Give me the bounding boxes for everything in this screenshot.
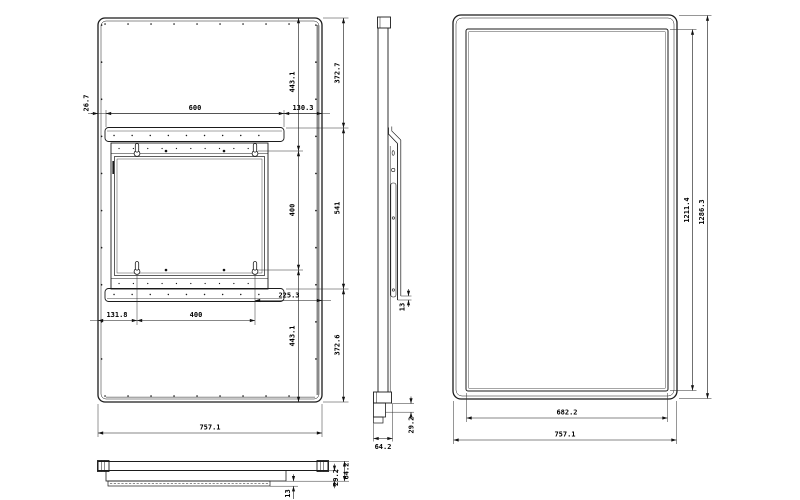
dim-top-overall-depth: 64.2 [343,463,351,480]
dim-back-overall-width: 757.1 [199,424,220,432]
front-view: 1211.4 1286.3 682.2 757.1 [453,15,712,444]
dim-side-bracket-offset: 13 [399,303,407,311]
mount-top-bar [105,128,284,142]
front-view-outline [453,15,677,399]
dim-back-hole-to-edge: 225.3 [278,292,299,300]
dim-back-mid-section: 541 [334,202,342,215]
dim-top-glass-thickness: 13 [284,489,292,497]
dim-vesa-top: 443.1 [289,71,297,92]
dim-front-display-width: 682.2 [556,409,577,417]
dim-vesa-vertical: 400 [289,204,297,217]
front-view-dimensions: 1211.4 1286.3 682.2 757.1 [454,16,712,445]
mount-bottom-bar [105,289,284,302]
top-edge-outline [98,461,329,487]
dim-vesa-bottom: 443.1 [289,325,297,346]
vesa-plate [111,143,268,289]
dim-front-overall-width: 757.1 [554,431,575,439]
side-view-dimensions: 13 29.2 64.2 [374,289,416,451]
dim-top-step-depth: 29.2 [332,469,340,486]
dim-front-display-height: 1211.4 [683,197,691,222]
dim-side-overall-depth: 64.2 [375,443,392,451]
dim-back-edge-to-hole: 131.8 [106,311,127,319]
plate-screw [223,150,226,153]
back-view: 26.7 600 130.3 443.1 400 443.1 372.7 541… [83,18,349,437]
plate-screw [165,150,168,153]
top-edge-dimensions: 64.2 29.2 13 [270,461,351,499]
dim-back-bottom-section: 372.6 [334,334,342,355]
side-profile [374,17,392,423]
top-edge-view: 64.2 29.2 13 [98,461,351,500]
cad-drawing-sheet: 26.7 600 130.3 443.1 400 443.1 372.7 541… [0,0,800,500]
dim-front-overall-height: 1286.3 [698,199,706,224]
dim-back-top-section: 372.7 [334,62,342,83]
dim-vesa-horizontal: 400 [190,311,203,319]
vesa-keyholes [134,144,258,275]
keyhole-slot [252,262,258,275]
side-view: 13 29.2 64.2 [374,17,416,451]
keyhole-slot [134,144,140,157]
keyhole-slot [134,262,140,275]
back-panel-screws [102,24,316,396]
dim-back-bar-width: 600 [189,104,202,112]
back-view-dimensions: 26.7 600 130.3 443.1 400 443.1 372.7 541… [83,18,349,437]
dim-side-step-depth: 29.2 [408,417,416,434]
plate-screw [223,269,226,272]
dim-back-edge-offset: 26.7 [83,95,91,112]
cad-drawing-canvas: 26.7 600 130.3 443.1 400 443.1 372.7 541… [0,0,800,500]
dim-back-bar-to-edge: 130.3 [292,104,313,112]
keyhole-slot [252,144,258,157]
plate-screw [165,269,168,272]
